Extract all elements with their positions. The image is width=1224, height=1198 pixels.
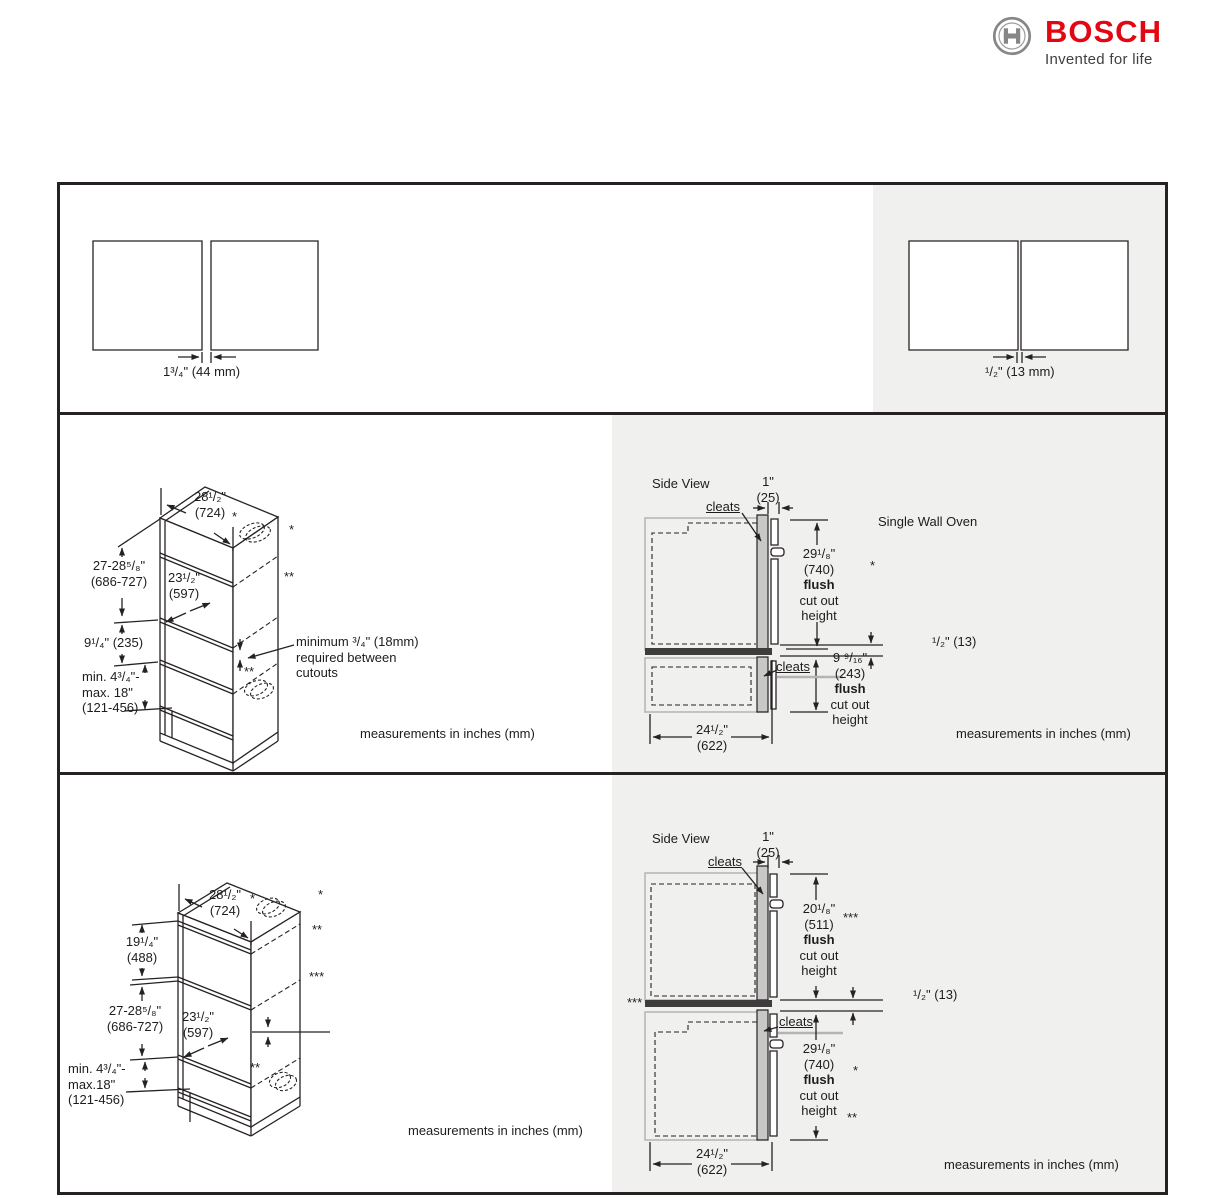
cab1-min-clearance-note: minimum ³/₄" (18mm) required between cut… [296, 634, 419, 681]
bosch-logo: BOSCH Invented for life [992, 16, 1162, 68]
footnote-marker: ** [312, 922, 322, 938]
side2-reveal-gap-label: ¹/₂" (13) [913, 987, 957, 1003]
footnote-marker: ** [244, 664, 254, 680]
units-note: measurements in inches (mm) [408, 1123, 583, 1139]
cab1-cutout-height-label: 27-28⁵/₈" (686-727) [80, 558, 158, 589]
side1-depth-label: 24¹/₂" (622) [680, 722, 744, 753]
side1-lower-cutout-label: 9 ⁹/₁₆" (243) flush cut out height [822, 650, 878, 728]
units-note: measurements in inches (mm) [956, 726, 1131, 742]
units-note: measurements in inches (mm) [360, 726, 535, 742]
cab1-base-height-label: min. 4³/₄"- max. 18" (121-456) [82, 669, 140, 716]
footnote-marker: * [870, 558, 875, 574]
row1-left-gap-drawing [93, 241, 318, 363]
footnote-marker: ** [847, 1110, 857, 1126]
brand-name: BOSCH [1045, 16, 1162, 48]
bosch-emblem-icon [992, 16, 1032, 56]
cab2-top-width-label: 28¹/₂" (724) [197, 887, 253, 918]
side1-cleat-width-label: 1" (25) [746, 474, 790, 505]
footnote-marker: ** [250, 1060, 260, 1076]
side2-depth-label: 24¹/₂" (622) [680, 1146, 744, 1177]
cab2-upper-height-label: 19¹/₄" (488) [113, 934, 171, 965]
cab1-inner-width-label: 23¹/₂" (597) [157, 570, 211, 601]
side1-reveal-gap-label: ¹/₂" (13) [932, 634, 976, 650]
cab2-cutout-height-label: 27-28⁵/₈" (686-727) [96, 1003, 174, 1034]
footnote-marker: *** [309, 969, 324, 985]
side1-upper-cutout-label: 29¹/₈" (740) flush cut out height [788, 546, 850, 624]
side2-upper-cutout-label: 20¹/₈" (511) flush cut out height [788, 901, 850, 979]
footnote-marker: * [250, 891, 255, 907]
side2-cleats-bottom-label: cleats [779, 1014, 813, 1030]
side2-cleats-top-label: cleats [708, 854, 742, 870]
row1-right-gap-drawing [909, 241, 1128, 363]
installation-sheet: BOSCH Invented for life [0, 0, 1224, 1198]
cab1-mid-height-label: 9¹/₄" (235) [84, 635, 143, 651]
single-wall-oven-label: Single Wall Oven [878, 514, 977, 530]
bosch-wordmark: BOSCH Invented for life [1045, 16, 1162, 68]
cabinet-cutout-drawing-1 [114, 487, 294, 771]
footnote-marker: *** [843, 910, 858, 926]
footnote-marker: * [289, 522, 294, 538]
side1-cleats-top-label: cleats [706, 499, 740, 515]
cab2-base-height-label: min. 4³/₄"- max.18" (121-456) [68, 1061, 126, 1108]
brand-tagline: Invented for life [1045, 51, 1162, 68]
footnote-marker: * [318, 887, 323, 903]
units-note: measurements in inches (mm) [944, 1157, 1119, 1173]
footnote-marker: *** [627, 995, 642, 1011]
side1-cleats-bottom-label: cleats [776, 659, 810, 675]
gap-left-dimension-label: 1³/₄" (44 mm) [163, 364, 240, 380]
footnote-marker: * [853, 1063, 858, 1079]
side2-cleat-width-label: 1" (25) [746, 829, 790, 860]
footnote-marker: * [232, 509, 237, 525]
side-view-title: Side View [652, 476, 710, 492]
cab2-inner-width-label: 23¹/₂" (597) [170, 1009, 226, 1040]
gap-right-dimension-label: ¹/₂" (13 mm) [985, 364, 1055, 380]
footnote-marker: ** [284, 569, 294, 585]
side2-lower-cutout-label: 29¹/₈" (740) flush cut out height [788, 1041, 850, 1119]
cab1-top-width-label: 28¹/₂" (724) [182, 489, 238, 520]
side-view-title: Side View [652, 831, 710, 847]
